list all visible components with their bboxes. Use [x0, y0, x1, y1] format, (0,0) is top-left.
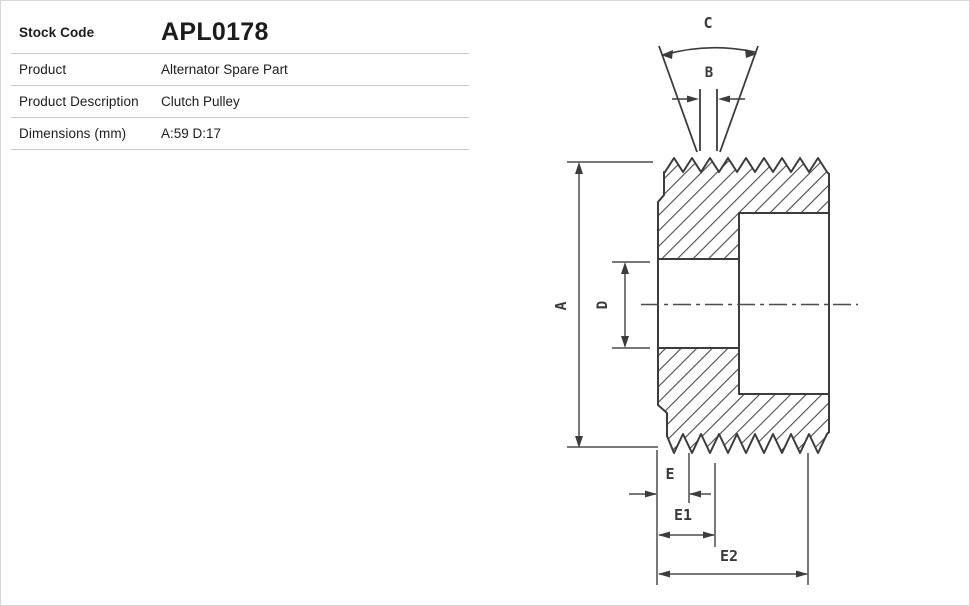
lower-section-hatched	[658, 348, 829, 453]
dimension-label-a: A	[552, 301, 570, 310]
dimension-label-d: D	[595, 301, 611, 309]
dimension-label-e: E	[665, 465, 674, 483]
dimension-label-e1: E1	[674, 506, 692, 524]
dimension-label-c: C	[703, 14, 712, 32]
product-spec-page: Stock Code APL0178 Product Alternator Sp…	[0, 0, 970, 606]
upper-section-hatched	[658, 158, 829, 259]
dimension-label-b: B	[705, 65, 713, 81]
pulley-cross-section	[658, 158, 829, 453]
groove-profile-symbol	[659, 46, 758, 152]
dimension-label-e2: E2	[720, 547, 738, 565]
dimension-c-arc	[663, 48, 755, 55]
pulley-technical-drawing: C B A D E E1 E2	[1, 1, 970, 606]
